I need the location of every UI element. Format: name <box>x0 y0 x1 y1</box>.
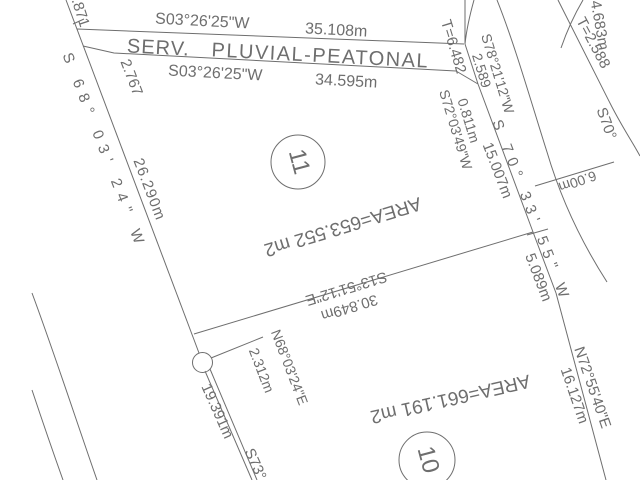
southwest-distance: 19.391m <box>197 381 236 441</box>
lot-10-area: AREA=661.191 m2 <box>368 370 532 427</box>
survey-monument-circle <box>193 353 213 373</box>
road-southwest-outer-curve <box>32 293 97 480</box>
plat-drawing: S03°26'25"W 35.108m SERV. PLUVIAL-PEATON… <box>0 0 640 480</box>
road-width: 6.00m <box>557 168 599 196</box>
lot-10-number: 10 <box>412 443 445 476</box>
easement-north-bearing: S03°26'25"W <box>155 11 251 33</box>
west-tie-distance: 2.767 <box>117 57 146 98</box>
tie-distance: 2.312m <box>246 346 278 395</box>
lot-11-area: AREA=653.552 m2 <box>262 192 424 260</box>
easement-name-serv: SERV. <box>126 35 190 60</box>
tie-bearing: N68°03'24"E <box>268 327 311 407</box>
road-southwest-inner-curve <box>32 390 63 480</box>
easement-south-bearing: S03°26'25"W <box>168 63 264 85</box>
easement-south-distance: 34.595m <box>315 71 378 91</box>
road-bearing-cut: S70° <box>593 105 620 142</box>
easement-north-distance: 35.108m <box>305 20 368 40</box>
corner-curve <box>465 0 474 44</box>
lot-11-number: 11 <box>283 146 316 177</box>
